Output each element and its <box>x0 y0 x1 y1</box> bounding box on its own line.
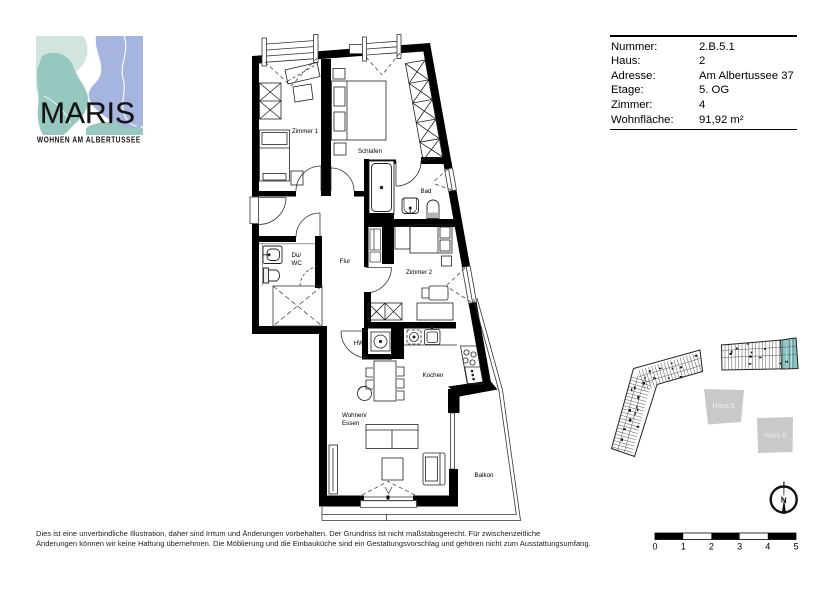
svg-text:Haus 5: Haus 5 <box>712 403 734 410</box>
svg-text:Essen: Essen <box>342 420 360 427</box>
svg-text:Balkon: Balkon <box>475 472 494 479</box>
svg-text:Kochen: Kochen <box>423 372 445 379</box>
svg-text:Bad: Bad <box>420 188 432 195</box>
svg-text:Zimmer 2: Zimmer 2 <box>406 269 433 276</box>
svg-text:HWR: HWR <box>354 340 369 347</box>
svg-text:Haus 6: Haus 6 <box>764 433 786 440</box>
svg-text:WC: WC <box>292 260 303 267</box>
svg-text:Zimmer 1: Zimmer 1 <box>292 128 319 135</box>
svg-text:Wohnen/: Wohnen/ <box>342 412 367 419</box>
svg-text:Du/: Du/ <box>292 252 302 259</box>
svg-text:Schlafen: Schlafen <box>358 148 383 155</box>
svg-text:Flur: Flur <box>340 258 351 265</box>
